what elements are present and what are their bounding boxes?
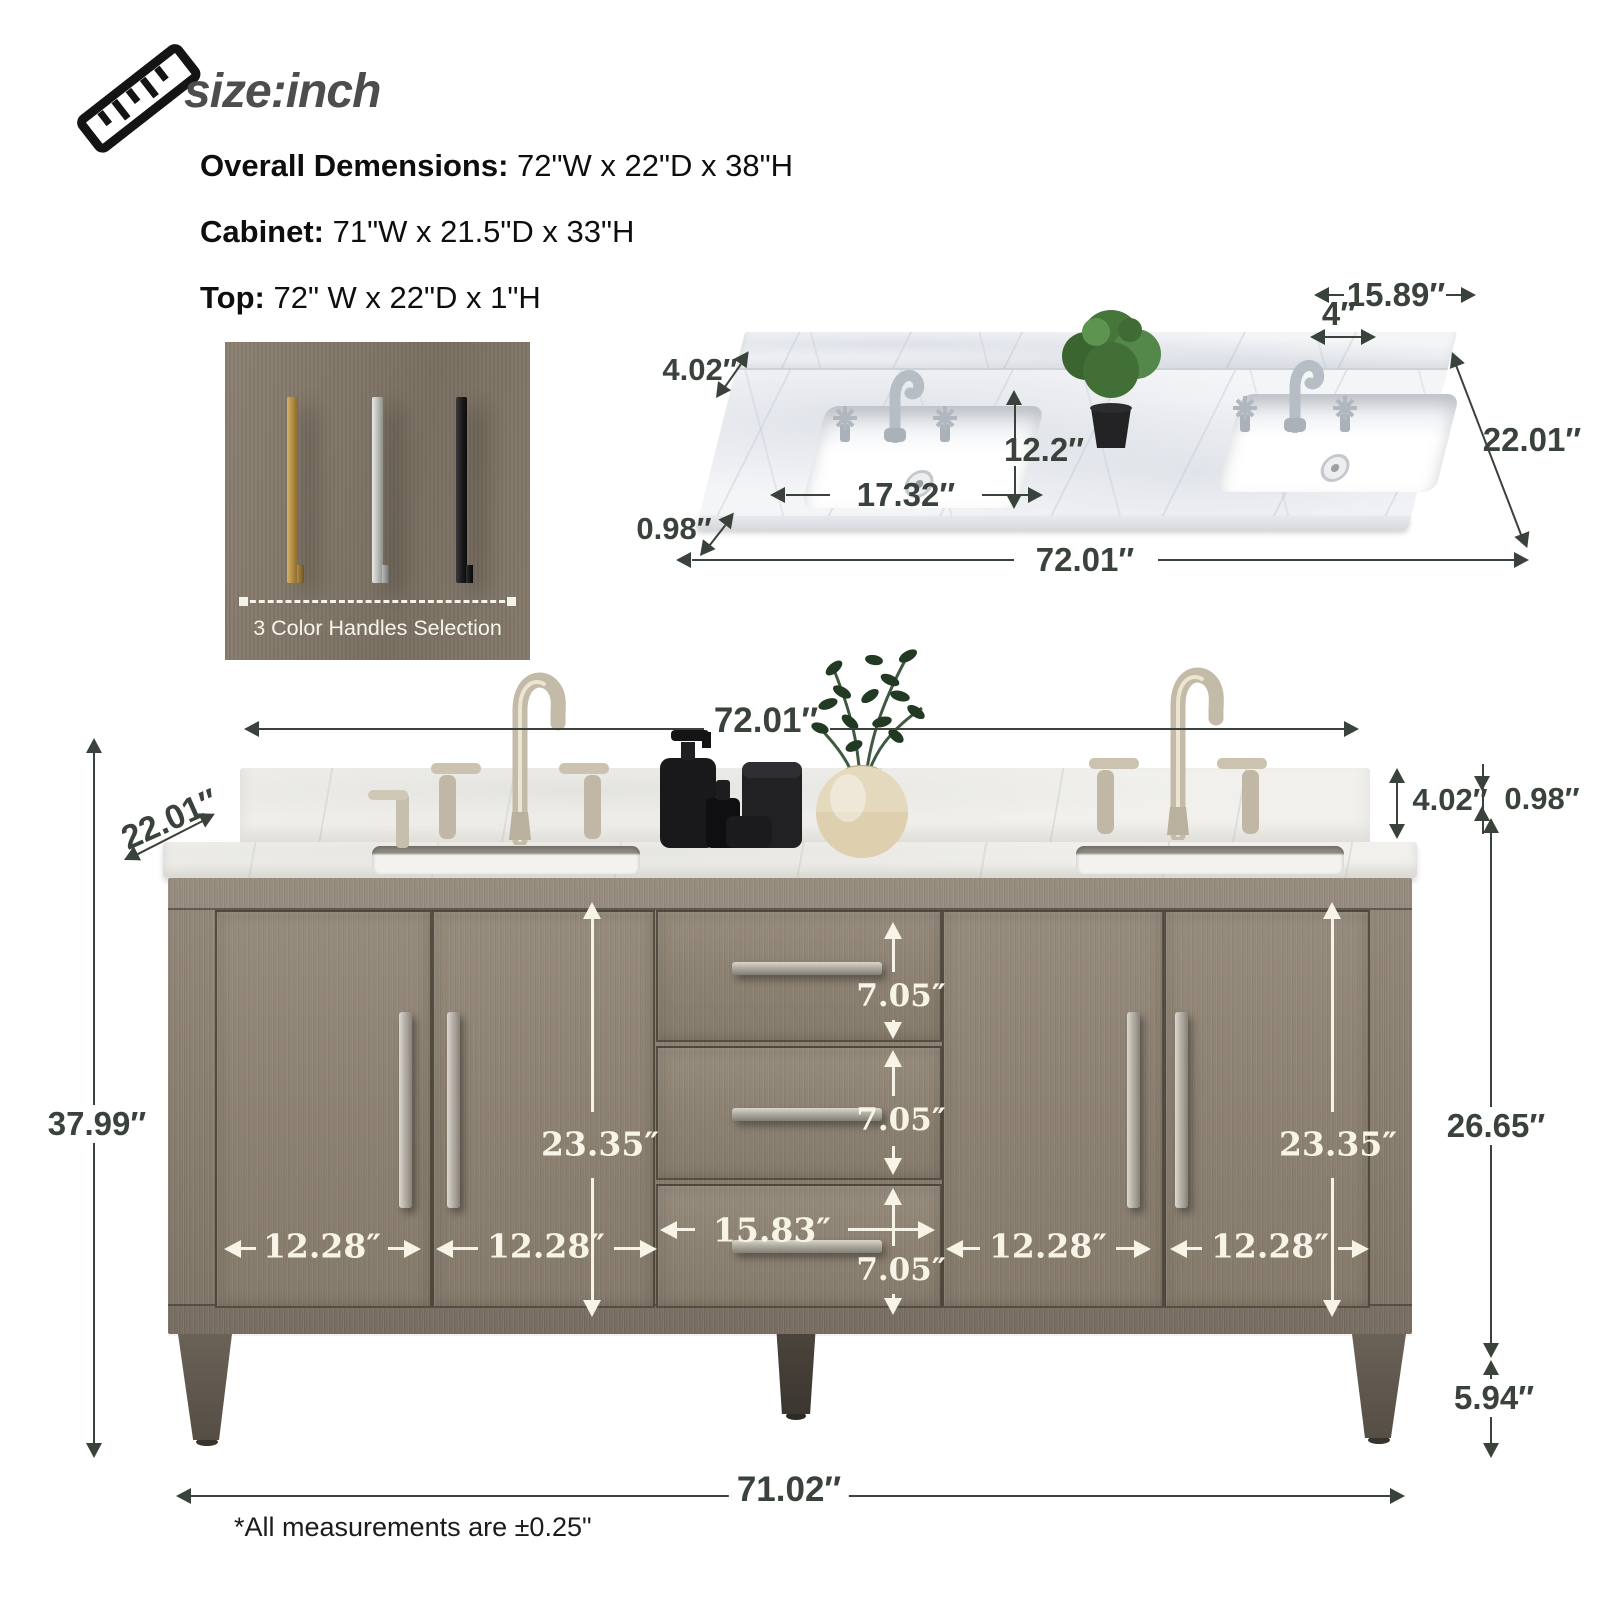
dim-arrow bbox=[1006, 390, 1022, 405]
dim-line bbox=[830, 728, 1344, 730]
dim-v-thickness: 0.98″ bbox=[1496, 781, 1587, 817]
dim-arrow bbox=[884, 1188, 902, 1205]
black-handle-swatch bbox=[456, 397, 467, 583]
dim-line bbox=[452, 1247, 478, 1250]
spec-cabinet: Cabinet: 71"W x 21.5"D x 33"H bbox=[200, 214, 634, 250]
dim-arrow bbox=[1344, 721, 1359, 737]
dim-ct-thickness: 0.98″ bbox=[636, 511, 711, 547]
dim-arrow bbox=[583, 1300, 601, 1317]
size-unit-label: size:inch bbox=[184, 64, 380, 119]
dim-arrow bbox=[1006, 494, 1022, 509]
dim-arrow bbox=[1134, 1240, 1151, 1258]
dim-line bbox=[1325, 336, 1361, 338]
spec-cabinet-label: Cabinet: bbox=[200, 214, 324, 249]
spec-cabinet-value: 71"W x 21.5"D x 33"H bbox=[324, 214, 634, 249]
dim-line bbox=[692, 559, 1014, 561]
dim-ct-sink-front: 12.2″ bbox=[1004, 431, 1084, 469]
dim-drawer2-height: 7.05″ bbox=[856, 1102, 945, 1138]
dim-line bbox=[892, 938, 895, 972]
dim-door1-width: 12.28″ bbox=[263, 1227, 381, 1266]
dim-line bbox=[1338, 1247, 1352, 1250]
dim-arrow bbox=[1323, 902, 1341, 919]
dim-arrow bbox=[244, 721, 259, 737]
dim-arrow bbox=[1390, 1488, 1405, 1504]
dim-line bbox=[388, 1247, 404, 1250]
dim-line bbox=[1014, 466, 1016, 494]
dim-arrow bbox=[1170, 1240, 1187, 1258]
left-leg bbox=[178, 1334, 232, 1440]
dim-v-top-width: 72.01″ bbox=[714, 701, 818, 741]
dim-right-opening-height: 23.35″ bbox=[1279, 1125, 1397, 1164]
vanity-dimension-diagram: size:inch Overall Demensions: 72"W x 22"… bbox=[0, 0, 1600, 1600]
dim-arrow bbox=[1352, 1240, 1369, 1258]
spec-top-label: Top: bbox=[200, 280, 265, 315]
soap-dispenser bbox=[366, 786, 436, 848]
gold-handle-swatch bbox=[287, 397, 298, 583]
dim-line bbox=[1490, 833, 1492, 1343]
dim-arrow bbox=[676, 552, 691, 568]
dim-ct-width: 72.01″ bbox=[1036, 541, 1134, 579]
dim-v-leg-height: 5.94″ bbox=[1446, 1379, 1542, 1417]
dim-line bbox=[1331, 1178, 1334, 1300]
dim-line bbox=[786, 494, 830, 496]
dim-arrow bbox=[1361, 329, 1376, 345]
right-leg bbox=[1352, 1334, 1406, 1438]
dim-arrow bbox=[1483, 1443, 1499, 1458]
vanity-left-sink bbox=[372, 846, 640, 874]
dim-line bbox=[1396, 782, 1398, 824]
dim-door4-width: 12.28″ bbox=[1211, 1227, 1329, 1266]
dim-line bbox=[258, 728, 704, 730]
dim-line bbox=[1186, 1247, 1202, 1250]
dim-line bbox=[1116, 1247, 1134, 1250]
spec-overall-label: Overall Demensions: bbox=[200, 148, 508, 183]
dim-arrow bbox=[224, 1240, 241, 1258]
dim-line bbox=[677, 1228, 695, 1231]
dim-ct-sink-spread: 15.89″ bbox=[1347, 276, 1445, 314]
dim-v-base-width: 71.02″ bbox=[729, 1470, 849, 1510]
dim-v-backsplash: 4.02″ bbox=[1412, 782, 1487, 818]
dim-left-opening-height: 23.35″ bbox=[541, 1125, 659, 1164]
countertop-right-faucet bbox=[1220, 328, 1370, 433]
dim-arrow bbox=[1461, 287, 1476, 303]
countertop-left-faucet bbox=[820, 338, 970, 443]
vanity-right-faucet bbox=[1083, 630, 1273, 840]
dim-arrow bbox=[884, 1050, 902, 1067]
vanity-left-faucet bbox=[425, 635, 615, 845]
dim-arrow bbox=[86, 738, 102, 753]
dim-arrow bbox=[640, 1240, 657, 1258]
dim-arrow bbox=[583, 902, 601, 919]
dim-arrow bbox=[1483, 818, 1499, 833]
dim-drawer3-height: 7.05″ bbox=[856, 1252, 945, 1288]
vanity-right-sink bbox=[1076, 846, 1344, 874]
door-3-handle bbox=[1127, 1012, 1140, 1208]
dim-ct-backsplash: 4.02″ bbox=[662, 352, 737, 388]
dim-arrow bbox=[86, 1443, 102, 1458]
dim-line bbox=[982, 494, 1028, 496]
footnote: *All measurements are ±0.25" bbox=[234, 1512, 592, 1543]
dim-arrow bbox=[884, 1298, 902, 1315]
drawer-1-handle bbox=[732, 962, 882, 975]
dim-arrow bbox=[918, 1221, 935, 1239]
spec-top-value: 72" W x 22"D x 1"H bbox=[265, 280, 541, 315]
dim-arrow bbox=[1389, 768, 1405, 783]
dim-ct-sink-width: 17.32″ bbox=[857, 476, 955, 514]
dim-arrow bbox=[770, 487, 785, 503]
dim-arrow bbox=[176, 1488, 191, 1504]
right-sink-drain bbox=[1318, 454, 1353, 482]
dim-line bbox=[892, 1146, 895, 1158]
center-leg bbox=[774, 1334, 818, 1414]
dim-v-height: 37.99″ bbox=[40, 1105, 154, 1143]
dim-arrow bbox=[884, 1022, 902, 1039]
dim-ct-faucet-spread: 4″ bbox=[1322, 295, 1356, 333]
dim-line bbox=[1446, 294, 1461, 296]
dim-line bbox=[848, 1228, 918, 1231]
dim-arrow bbox=[436, 1240, 453, 1258]
dim-door3-width: 12.28″ bbox=[989, 1227, 1107, 1266]
handle-selection-card: 3 Color Handles Selection bbox=[225, 342, 530, 660]
dim-line bbox=[962, 1247, 980, 1250]
silver-handle-swatch bbox=[372, 397, 383, 583]
dim-arrow bbox=[1514, 552, 1529, 568]
door-2-handle bbox=[447, 1012, 460, 1208]
dim-arrow bbox=[404, 1240, 421, 1258]
dim-arrow bbox=[1483, 1343, 1499, 1358]
spec-overall: Overall Demensions: 72"W x 22"D x 38"H bbox=[200, 148, 793, 184]
dim-line bbox=[892, 1204, 895, 1246]
dim-arrow bbox=[946, 1240, 963, 1258]
dim-v-body-height: 26.65″ bbox=[1439, 1107, 1553, 1145]
dim-arrow bbox=[884, 922, 902, 939]
dim-arrow bbox=[884, 1158, 902, 1175]
dim-line bbox=[614, 1247, 640, 1250]
dim-arrow bbox=[1323, 1300, 1341, 1317]
dim-arrow bbox=[1389, 824, 1405, 839]
dim-door2-width: 12.28″ bbox=[487, 1227, 605, 1266]
dim-line bbox=[93, 753, 95, 1443]
door-4-handle bbox=[1175, 1012, 1188, 1208]
cabinet-bottom-rail bbox=[168, 1304, 1412, 1336]
spec-top: Top: 72" W x 22"D x 1"H bbox=[200, 280, 541, 316]
dim-arrow bbox=[1028, 487, 1043, 503]
dim-drawer-width: 15.83″ bbox=[713, 1211, 831, 1250]
dim-line bbox=[1331, 918, 1334, 1112]
divider-end-square bbox=[239, 597, 248, 606]
door-1-handle bbox=[399, 1012, 412, 1208]
dim-drawer1-height: 7.05″ bbox=[856, 978, 945, 1014]
handle-card-divider bbox=[241, 600, 514, 603]
dim-line bbox=[591, 918, 594, 1112]
countertop-front-edge bbox=[696, 516, 1411, 530]
dim-arrow bbox=[1483, 1360, 1499, 1375]
cabinet-top-rail bbox=[168, 878, 1412, 910]
divider-end-square bbox=[507, 597, 516, 606]
dim-line bbox=[1158, 559, 1514, 561]
spec-overall-value: 72"W x 22"D x 38"H bbox=[508, 148, 793, 183]
dim-line bbox=[240, 1247, 256, 1250]
dim-arrow bbox=[660, 1221, 677, 1239]
dim-ct-depth: 22.01″ bbox=[1483, 421, 1581, 459]
dim-line bbox=[892, 1066, 895, 1096]
